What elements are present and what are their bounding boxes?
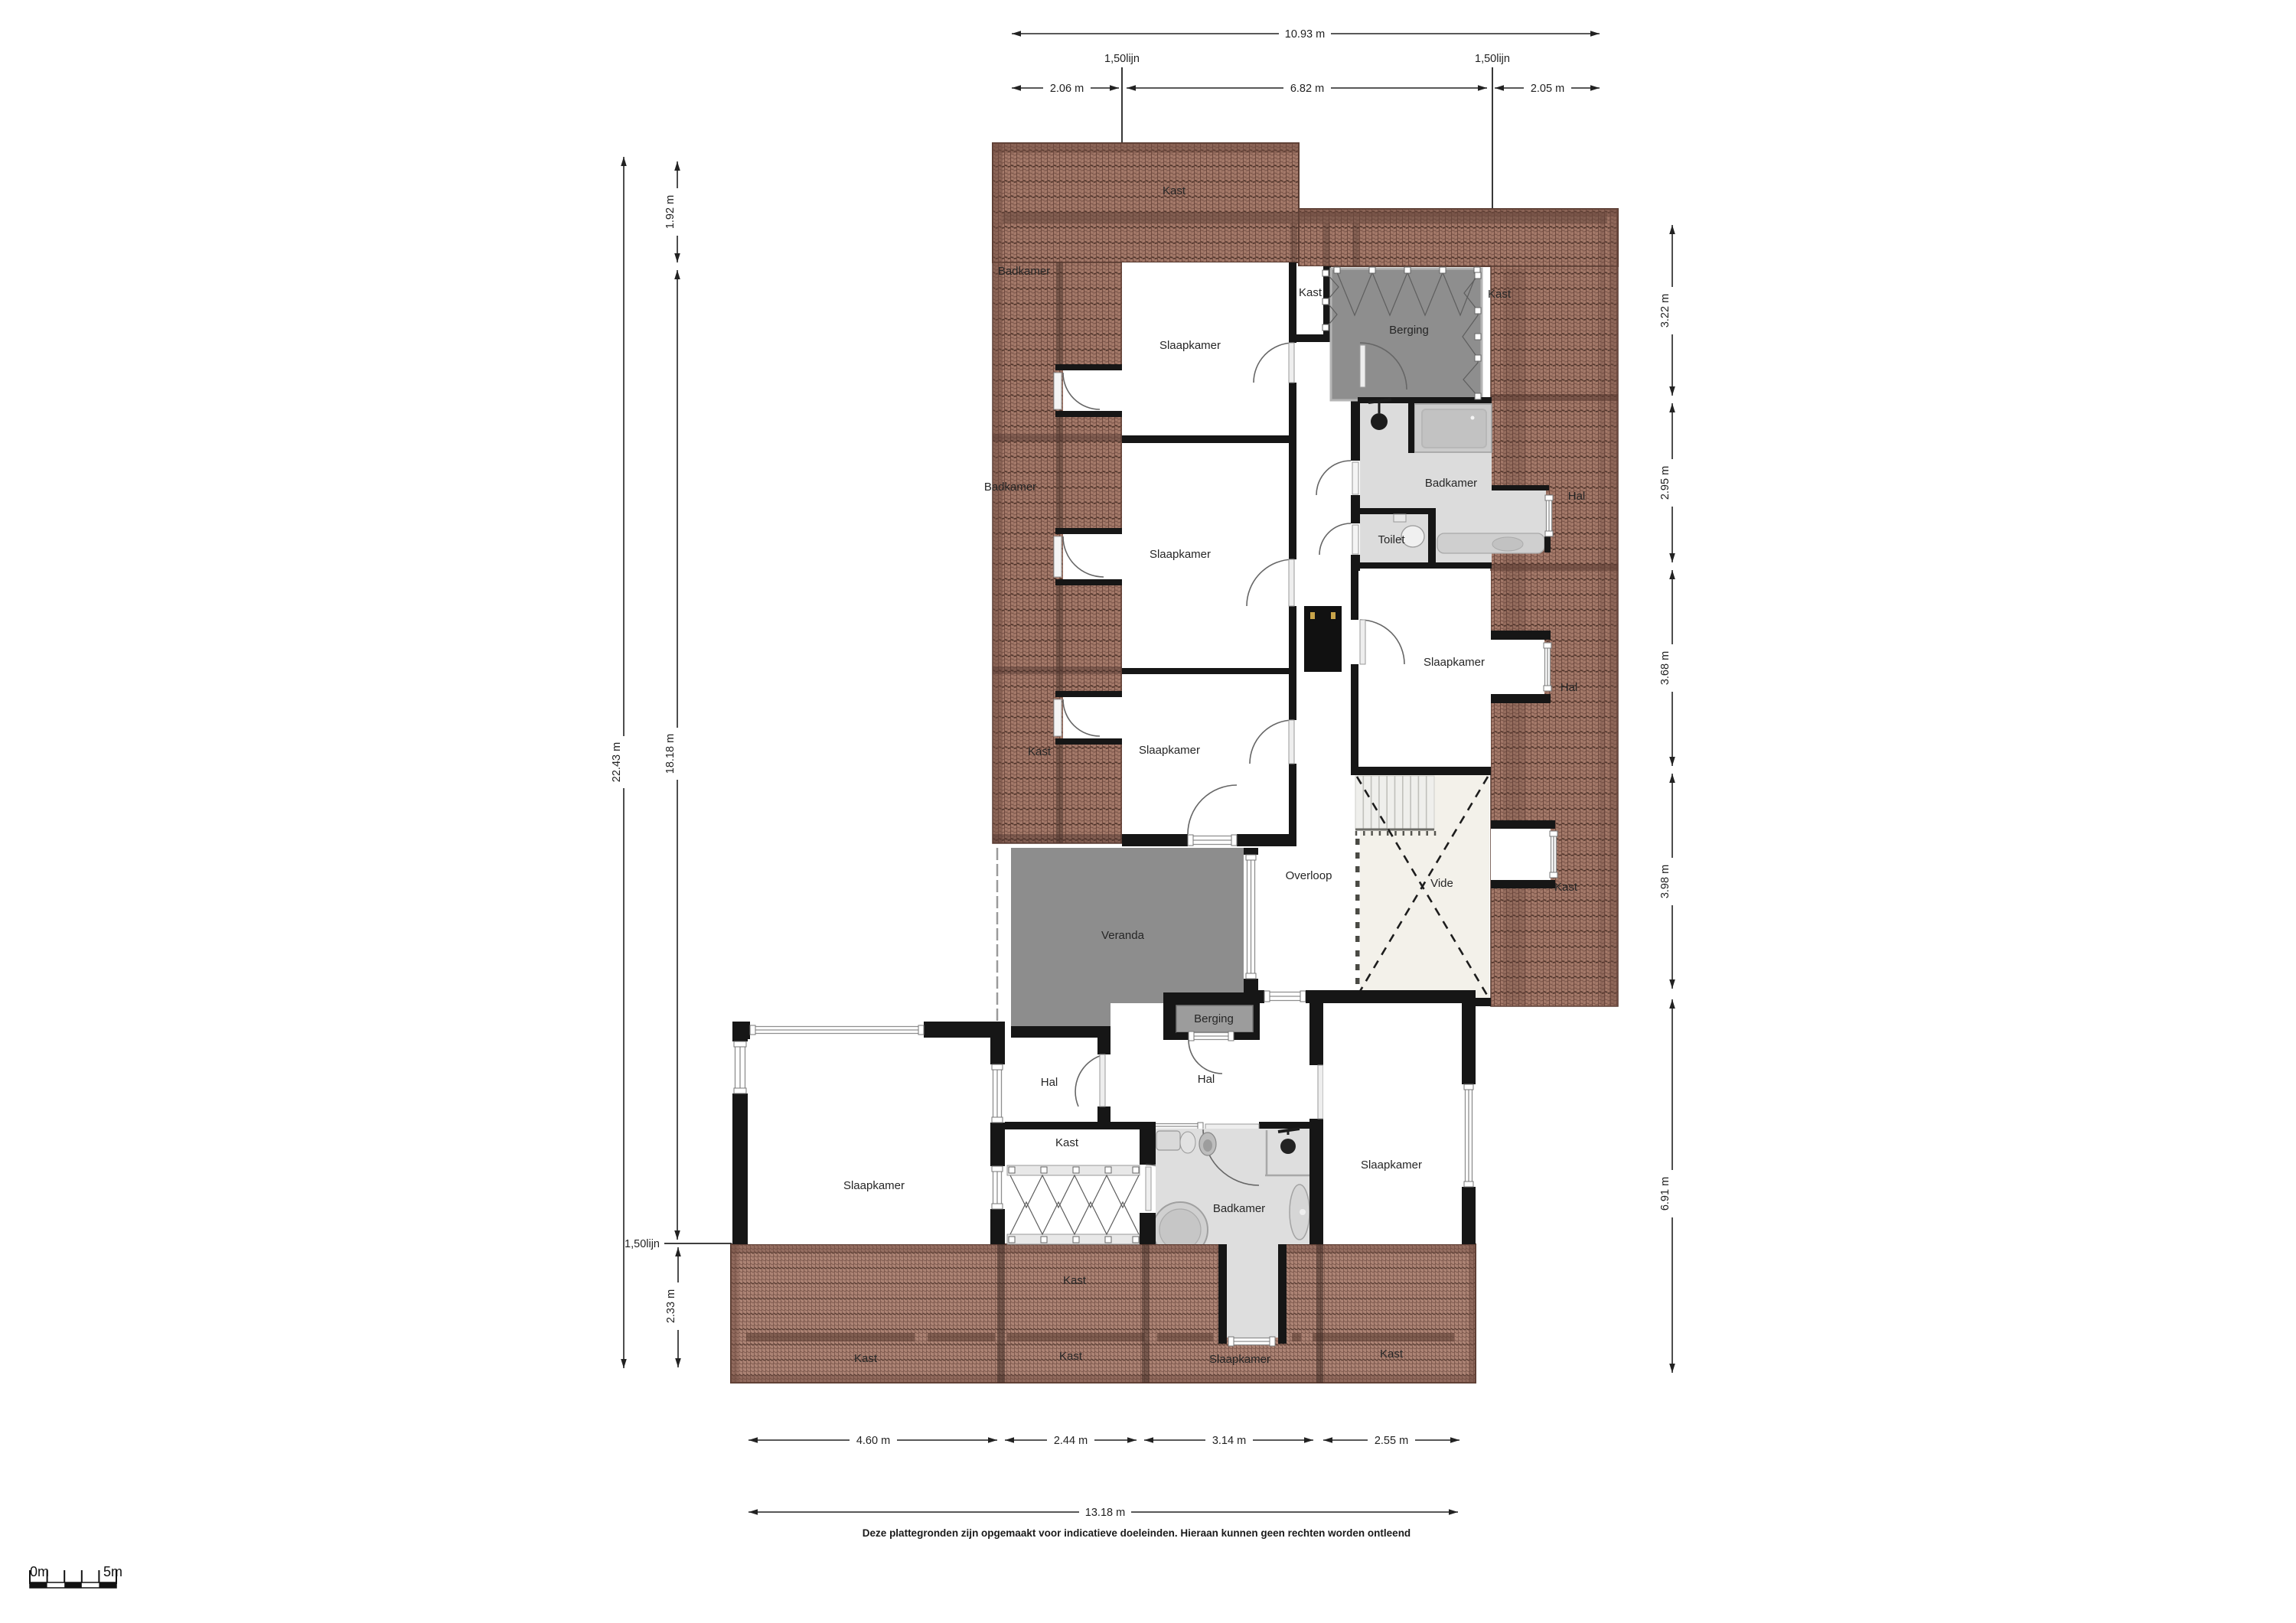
svg-text:1,50lijn: 1,50lijn: [1475, 53, 1510, 65]
svg-text:3.22 m: 3.22 m: [1659, 294, 1671, 328]
svg-text:2.33 m: 2.33 m: [665, 1289, 677, 1323]
svg-text:Kast: Kast: [1063, 1274, 1087, 1287]
svg-text:2.44 m: 2.44 m: [1054, 1435, 1088, 1447]
svg-text:Berging: Berging: [1194, 1012, 1234, 1025]
svg-text:Hal: Hal: [1041, 1076, 1058, 1089]
svg-text:Deze plattegronden zijn opgema: Deze plattegronden zijn opgemaakt voor i…: [863, 1527, 1411, 1539]
svg-text:Kast: Kast: [1059, 1350, 1083, 1363]
svg-text:Berging: Berging: [1389, 324, 1429, 337]
svg-text:Kast: Kast: [1554, 881, 1578, 894]
svg-text:Kast: Kast: [1488, 288, 1512, 301]
svg-text:0m: 0m: [30, 1564, 49, 1579]
svg-text:Slaapkamer: Slaapkamer: [1159, 339, 1221, 352]
svg-text:22.43 m: 22.43 m: [611, 742, 623, 782]
svg-text:Kast: Kast: [1028, 745, 1052, 758]
svg-text:Slaapkamer: Slaapkamer: [1150, 548, 1211, 561]
svg-text:18.18 m: 18.18 m: [664, 734, 677, 774]
svg-text:Badkamer: Badkamer: [984, 481, 1036, 494]
svg-text:3.68 m: 3.68 m: [1659, 651, 1671, 685]
svg-text:13.18 m: 13.18 m: [1085, 1507, 1125, 1519]
svg-text:Badkamer: Badkamer: [998, 265, 1050, 278]
svg-text:3.14 m: 3.14 m: [1212, 1435, 1246, 1447]
svg-text:3.98 m: 3.98 m: [1659, 865, 1671, 898]
svg-text:1,50lijn: 1,50lijn: [625, 1238, 660, 1250]
svg-text:Slaapkamer: Slaapkamer: [1361, 1159, 1422, 1172]
svg-text:Slaapkamer: Slaapkamer: [1209, 1353, 1270, 1366]
svg-text:Hal: Hal: [1561, 681, 1578, 694]
svg-text:Badkamer: Badkamer: [1425, 477, 1477, 490]
svg-text:Vide: Vide: [1430, 877, 1453, 890]
svg-text:Kast: Kast: [1163, 184, 1186, 197]
svg-text:Kast: Kast: [1055, 1136, 1079, 1149]
svg-text:Toilet: Toilet: [1378, 533, 1405, 546]
svg-text:6.82 m: 6.82 m: [1290, 83, 1324, 95]
svg-text:2.06 m: 2.06 m: [1050, 83, 1084, 95]
svg-text:2.95 m: 2.95 m: [1659, 466, 1671, 500]
svg-text:Kast: Kast: [854, 1352, 878, 1365]
svg-text:1.92 m: 1.92 m: [664, 195, 677, 229]
svg-text:Kast: Kast: [1380, 1348, 1404, 1361]
svg-text:10.93 m: 10.93 m: [1285, 28, 1325, 41]
svg-text:6.91 m: 6.91 m: [1659, 1177, 1671, 1211]
svg-text:2.55 m: 2.55 m: [1375, 1435, 1408, 1447]
svg-text:Kast: Kast: [1299, 286, 1322, 299]
svg-text:Slaapkamer: Slaapkamer: [1424, 656, 1485, 669]
svg-text:Hal: Hal: [1568, 490, 1586, 503]
svg-text:5m: 5m: [103, 1564, 122, 1579]
svg-text:1,50lijn: 1,50lijn: [1104, 53, 1140, 65]
svg-text:Hal: Hal: [1198, 1073, 1215, 1086]
svg-text:Veranda: Veranda: [1101, 929, 1145, 942]
svg-text:Overloop: Overloop: [1286, 869, 1332, 882]
svg-text:2.05 m: 2.05 m: [1531, 83, 1564, 95]
svg-text:4.60 m: 4.60 m: [856, 1435, 890, 1447]
svg-text:Badkamer: Badkamer: [1213, 1202, 1265, 1215]
svg-text:Slaapkamer: Slaapkamer: [843, 1179, 905, 1192]
svg-text:Slaapkamer: Slaapkamer: [1139, 744, 1200, 757]
